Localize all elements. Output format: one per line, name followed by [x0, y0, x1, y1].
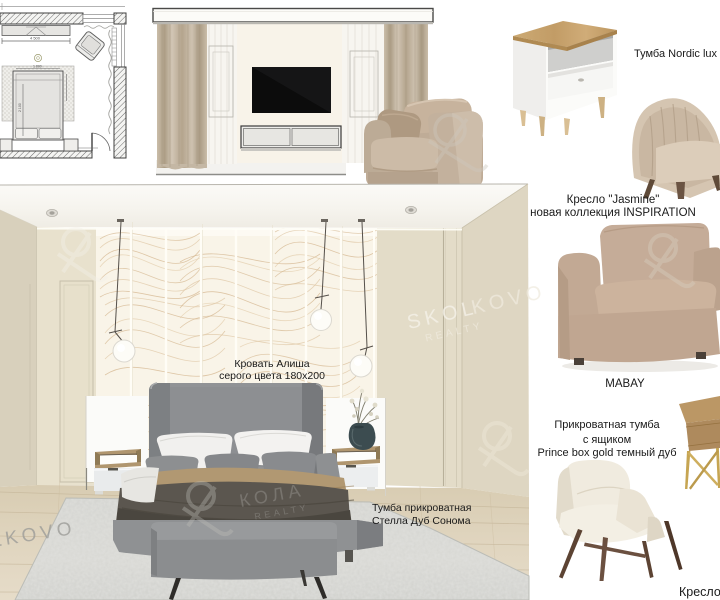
svg-text:MABAY: MABAY — [605, 378, 645, 390]
svg-text:с ящиком: с ящиком — [583, 434, 631, 446]
svg-text:1 800: 1 800 — [33, 65, 42, 69]
svg-text:Кресло А: Кресло А — [679, 585, 720, 599]
svg-text:4 500: 4 500 — [30, 36, 41, 41]
svg-text:Прикроватная тумба: Прикроватная тумба — [554, 419, 660, 431]
svg-text:Кровать Алиша: Кровать Алиша — [234, 358, 309, 370]
svg-text:Тумба прикроватная: Тумба прикроватная — [372, 502, 471, 514]
svg-text:новая коллекция INSPIRATION: новая коллекция INSPIRATION — [530, 207, 696, 219]
svg-text:Кресло "Jasmine": Кресло "Jasmine" — [567, 194, 660, 206]
svg-text:серого цвета 180х200: серого цвета 180х200 — [219, 370, 325, 382]
svg-text:2 100: 2 100 — [18, 103, 22, 112]
svg-text:Тумба Nordic lux: Тумба Nordic lux — [634, 48, 718, 60]
svg-text:Prince box gold темный дуб: Prince box gold темный дуб — [538, 447, 677, 459]
svg-text:Стелла Дуб Сонома: Стелла Дуб Сонома — [372, 515, 471, 527]
